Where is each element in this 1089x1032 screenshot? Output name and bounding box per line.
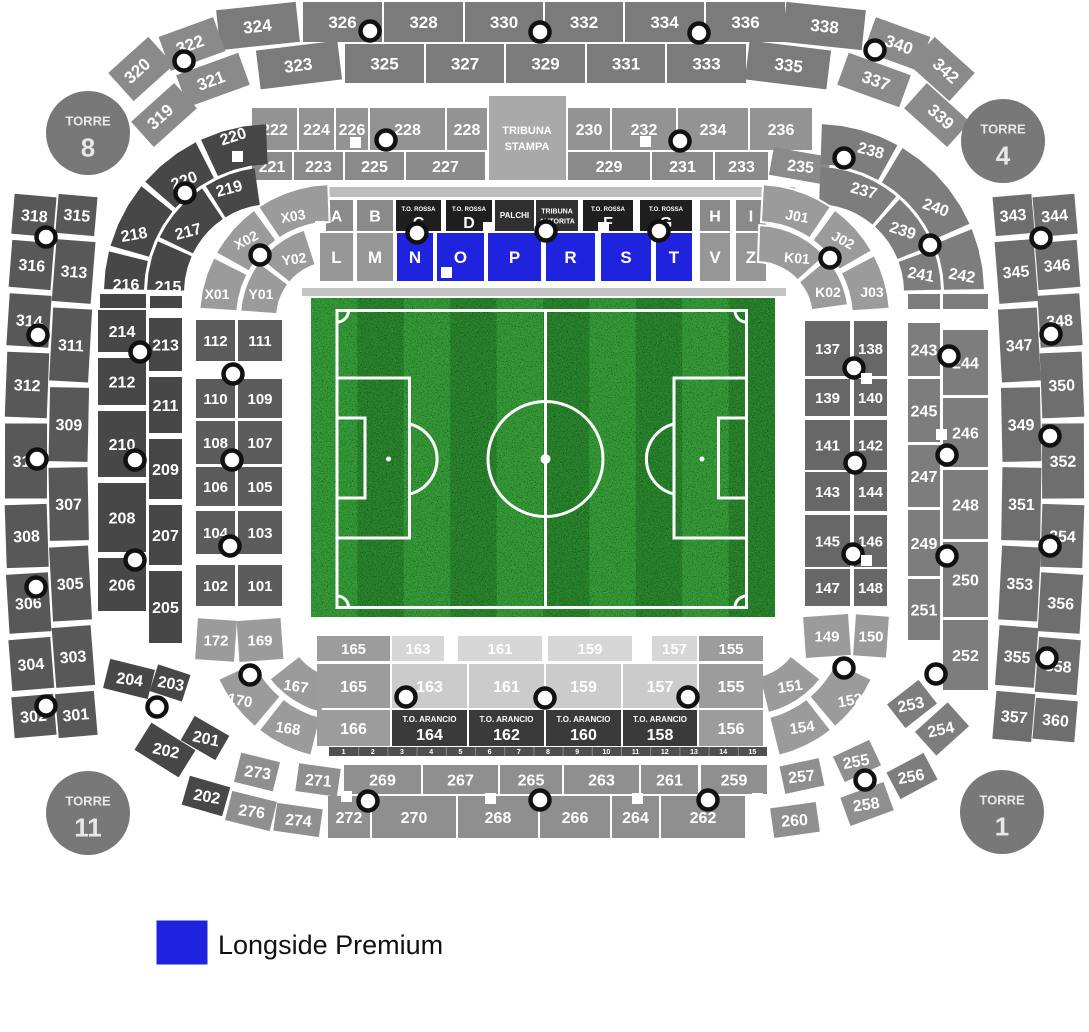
svg-text:STAMPA: STAMPA	[505, 141, 550, 153]
svg-text:318: 318	[20, 207, 48, 226]
svg-text:TRIBUNA: TRIBUNA	[502, 125, 552, 137]
svg-text:T.O. ROSSA: T.O. ROSSA	[649, 207, 684, 213]
svg-text:228: 228	[454, 122, 481, 139]
svg-text:157: 157	[662, 641, 687, 658]
svg-text:108: 108	[203, 435, 228, 452]
svg-text:245: 245	[911, 403, 938, 420]
svg-text:4: 4	[429, 749, 433, 756]
svg-text:326: 326	[328, 13, 356, 32]
svg-text:349: 349	[1008, 417, 1035, 435]
svg-text:9: 9	[575, 749, 579, 756]
svg-text:139: 139	[815, 390, 840, 407]
svg-text:164: 164	[416, 727, 443, 744]
svg-text:333: 333	[692, 55, 720, 74]
svg-text:8: 8	[546, 749, 550, 756]
svg-text:T.O. ROSSA: T.O. ROSSA	[591, 207, 626, 213]
svg-text:269: 269	[369, 772, 396, 789]
svg-text:147: 147	[815, 580, 840, 597]
svg-text:J03: J03	[860, 284, 884, 300]
svg-text:Longside Premium: Longside Premium	[218, 930, 443, 960]
svg-text:304: 304	[17, 656, 45, 675]
svg-text:303: 303	[59, 648, 87, 667]
svg-text:TORRE: TORRE	[65, 114, 111, 129]
svg-text:163: 163	[416, 679, 443, 696]
svg-text:325: 325	[370, 55, 398, 74]
svg-text:235: 235	[786, 157, 814, 177]
svg-text:356: 356	[1047, 595, 1075, 614]
svg-text:K01: K01	[784, 249, 811, 267]
svg-text:236: 236	[768, 122, 795, 139]
svg-text:T.O. ARANCIO: T.O. ARANCIO	[557, 715, 611, 724]
svg-text:101: 101	[247, 578, 272, 595]
svg-text:M: M	[368, 248, 382, 267]
svg-text:338: 338	[809, 16, 839, 38]
svg-text:246: 246	[952, 425, 979, 442]
svg-text:172: 172	[203, 632, 228, 649]
svg-text:249: 249	[911, 536, 938, 553]
svg-text:227: 227	[432, 159, 459, 176]
svg-text:263: 263	[588, 772, 615, 789]
svg-text:D: D	[463, 215, 475, 232]
svg-text:151: 151	[777, 677, 804, 697]
svg-text:271: 271	[304, 772, 332, 791]
svg-text:231: 231	[669, 159, 696, 176]
svg-text:13: 13	[690, 749, 698, 756]
svg-text:165: 165	[341, 641, 366, 658]
svg-text:305: 305	[56, 576, 84, 594]
svg-text:360: 360	[1041, 712, 1069, 731]
svg-text:A: A	[331, 208, 343, 225]
svg-text:259: 259	[721, 772, 748, 789]
svg-text:266: 266	[562, 810, 589, 827]
svg-text:158: 158	[647, 727, 674, 744]
svg-text:163: 163	[405, 641, 430, 658]
svg-text:343: 343	[999, 207, 1027, 226]
svg-text:313: 313	[60, 263, 88, 282]
svg-text:357: 357	[1000, 708, 1028, 727]
svg-text:154: 154	[789, 718, 817, 738]
svg-text:301: 301	[62, 706, 90, 725]
svg-text:111: 111	[248, 333, 271, 350]
svg-text:335: 335	[773, 54, 803, 76]
svg-text:213: 213	[152, 337, 179, 354]
svg-text:351: 351	[1008, 497, 1035, 514]
svg-text:143: 143	[815, 484, 840, 501]
svg-text:309: 309	[55, 417, 82, 435]
svg-text:14: 14	[719, 749, 727, 756]
svg-text:B: B	[369, 208, 381, 225]
svg-text:251: 251	[911, 602, 938, 619]
svg-text:103: 103	[247, 525, 272, 542]
svg-text:5: 5	[458, 749, 462, 756]
svg-text:323: 323	[283, 54, 313, 76]
svg-text:209: 209	[152, 462, 179, 479]
svg-text:141: 141	[815, 437, 840, 454]
svg-text:148: 148	[858, 580, 883, 597]
svg-text:N: N	[409, 248, 421, 267]
svg-text:162: 162	[493, 727, 520, 744]
svg-text:160: 160	[570, 727, 597, 744]
svg-text:234: 234	[700, 122, 727, 139]
svg-text:12: 12	[661, 749, 669, 756]
svg-text:102: 102	[203, 578, 228, 595]
svg-text:155: 155	[718, 679, 745, 696]
svg-text:331: 331	[612, 55, 640, 74]
svg-text:243: 243	[911, 342, 938, 359]
svg-text:159: 159	[577, 641, 602, 658]
svg-text:308: 308	[13, 528, 40, 546]
svg-text:Z: Z	[746, 248, 756, 267]
svg-text:328: 328	[409, 13, 437, 32]
svg-text:344: 344	[1041, 207, 1069, 226]
svg-text:262: 262	[690, 810, 717, 827]
svg-text:156: 156	[718, 721, 745, 738]
svg-text:112: 112	[203, 333, 227, 350]
svg-text:7: 7	[517, 749, 521, 756]
svg-text:230: 230	[576, 122, 603, 139]
svg-text:H: H	[709, 208, 721, 225]
svg-text:4: 4	[996, 140, 1011, 170]
svg-text:159: 159	[570, 679, 597, 696]
svg-text:324: 324	[242, 16, 273, 38]
svg-text:307: 307	[55, 497, 82, 515]
svg-text:150: 150	[858, 628, 883, 645]
svg-text:161: 161	[487, 641, 512, 658]
svg-text:265: 265	[518, 772, 545, 789]
svg-text:TORRE: TORRE	[980, 122, 1026, 137]
svg-text:T.O. ARANCIO: T.O. ARANCIO	[633, 715, 687, 724]
svg-text:332: 332	[570, 13, 598, 32]
svg-text:257: 257	[787, 767, 815, 787]
svg-text:252: 252	[952, 648, 979, 665]
svg-text:316: 316	[18, 257, 46, 276]
svg-text:272: 272	[336, 810, 363, 827]
svg-text:223: 223	[305, 159, 332, 176]
svg-text:V: V	[709, 248, 721, 267]
svg-text:109: 109	[247, 391, 272, 408]
svg-text:P: P	[509, 248, 520, 267]
svg-text:226: 226	[339, 122, 366, 139]
svg-text:352: 352	[1050, 454, 1077, 471]
svg-text:215: 215	[155, 279, 182, 296]
svg-text:311: 311	[57, 337, 84, 355]
svg-text:315: 315	[63, 207, 91, 226]
svg-text:208: 208	[109, 510, 136, 527]
svg-text:110: 110	[203, 391, 227, 408]
svg-text:T.O. ARANCIO: T.O. ARANCIO	[480, 715, 534, 724]
svg-text:270: 270	[401, 810, 428, 827]
svg-text:TRIBUNA: TRIBUNA	[541, 209, 573, 216]
svg-text:345: 345	[1002, 263, 1030, 282]
svg-text:6: 6	[488, 749, 492, 756]
svg-text:T.O. ARANCIO: T.O. ARANCIO	[403, 715, 457, 724]
svg-text:105: 105	[247, 479, 272, 496]
svg-text:207: 207	[152, 528, 179, 545]
svg-text:212: 212	[109, 374, 136, 391]
svg-text:I: I	[749, 208, 753, 225]
svg-text:S: S	[620, 248, 631, 267]
svg-text:T.O. ROSSA: T.O. ROSSA	[452, 207, 487, 213]
svg-text:353: 353	[1006, 576, 1034, 594]
svg-text:247: 247	[911, 469, 938, 486]
svg-text:169: 169	[247, 632, 272, 649]
svg-text:274: 274	[284, 812, 312, 831]
svg-text:260: 260	[781, 812, 809, 831]
svg-text:268: 268	[485, 810, 512, 827]
svg-text:264: 264	[622, 810, 649, 827]
svg-text:15: 15	[749, 749, 757, 756]
svg-text:140: 140	[858, 390, 883, 407]
svg-text:1: 1	[342, 749, 346, 756]
svg-text:334: 334	[650, 13, 679, 32]
svg-text:350: 350	[1048, 377, 1075, 395]
svg-text:167: 167	[282, 677, 309, 697]
svg-text:L: L	[331, 248, 341, 267]
svg-text:PALCHI: PALCHI	[500, 211, 529, 220]
svg-text:346: 346	[1043, 257, 1071, 276]
svg-text:211: 211	[153, 398, 179, 415]
svg-text:145: 145	[815, 533, 840, 550]
svg-text:165: 165	[340, 679, 367, 696]
svg-text:161: 161	[493, 679, 520, 696]
svg-text:11: 11	[74, 812, 102, 842]
svg-text:11: 11	[632, 749, 640, 756]
svg-text:2: 2	[371, 749, 375, 756]
svg-text:166: 166	[340, 721, 367, 738]
svg-text:137: 137	[815, 341, 840, 358]
svg-text:233: 233	[728, 159, 755, 176]
svg-text:355: 355	[1003, 648, 1031, 667]
svg-text:142: 142	[858, 437, 883, 454]
svg-text:107: 107	[247, 435, 272, 452]
svg-text:TORRE: TORRE	[979, 793, 1025, 808]
svg-text:228: 228	[394, 122, 421, 139]
svg-text:T.O. ROSSA: T.O. ROSSA	[401, 207, 436, 213]
svg-text:347: 347	[1005, 337, 1033, 355]
svg-text:312: 312	[14, 377, 41, 395]
svg-text:327: 327	[451, 55, 479, 74]
svg-text:1: 1	[995, 811, 1009, 841]
svg-text:267: 267	[447, 772, 474, 789]
svg-text:225: 225	[361, 159, 388, 176]
svg-text:T: T	[669, 248, 680, 267]
svg-text:149: 149	[814, 628, 839, 645]
svg-text:K02: K02	[815, 284, 841, 300]
svg-text:X01: X01	[205, 286, 230, 302]
svg-text:329: 329	[531, 55, 559, 74]
svg-text:O: O	[454, 248, 467, 267]
svg-text:248: 248	[952, 497, 979, 514]
svg-text:3: 3	[400, 749, 404, 756]
svg-text:Y01: Y01	[249, 286, 274, 302]
svg-text:336: 336	[731, 13, 759, 32]
svg-text:138: 138	[858, 341, 883, 358]
svg-text:214: 214	[109, 324, 136, 341]
svg-text:157: 157	[647, 679, 674, 696]
svg-text:10: 10	[603, 749, 611, 756]
svg-text:106: 106	[203, 479, 228, 496]
svg-text:8: 8	[81, 132, 95, 162]
svg-text:229: 229	[596, 159, 623, 176]
svg-text:216: 216	[113, 277, 140, 294]
svg-text:330: 330	[490, 13, 518, 32]
svg-text:TORRE: TORRE	[65, 794, 111, 809]
svg-text:250: 250	[952, 572, 979, 589]
svg-text:168: 168	[274, 719, 301, 739]
svg-text:144: 144	[858, 484, 884, 501]
svg-text:155: 155	[718, 641, 743, 658]
svg-text:206: 206	[109, 577, 136, 594]
svg-text:224: 224	[303, 122, 330, 139]
svg-text:205: 205	[152, 600, 179, 617]
svg-text:R: R	[564, 248, 576, 267]
svg-text:261: 261	[656, 772, 683, 789]
